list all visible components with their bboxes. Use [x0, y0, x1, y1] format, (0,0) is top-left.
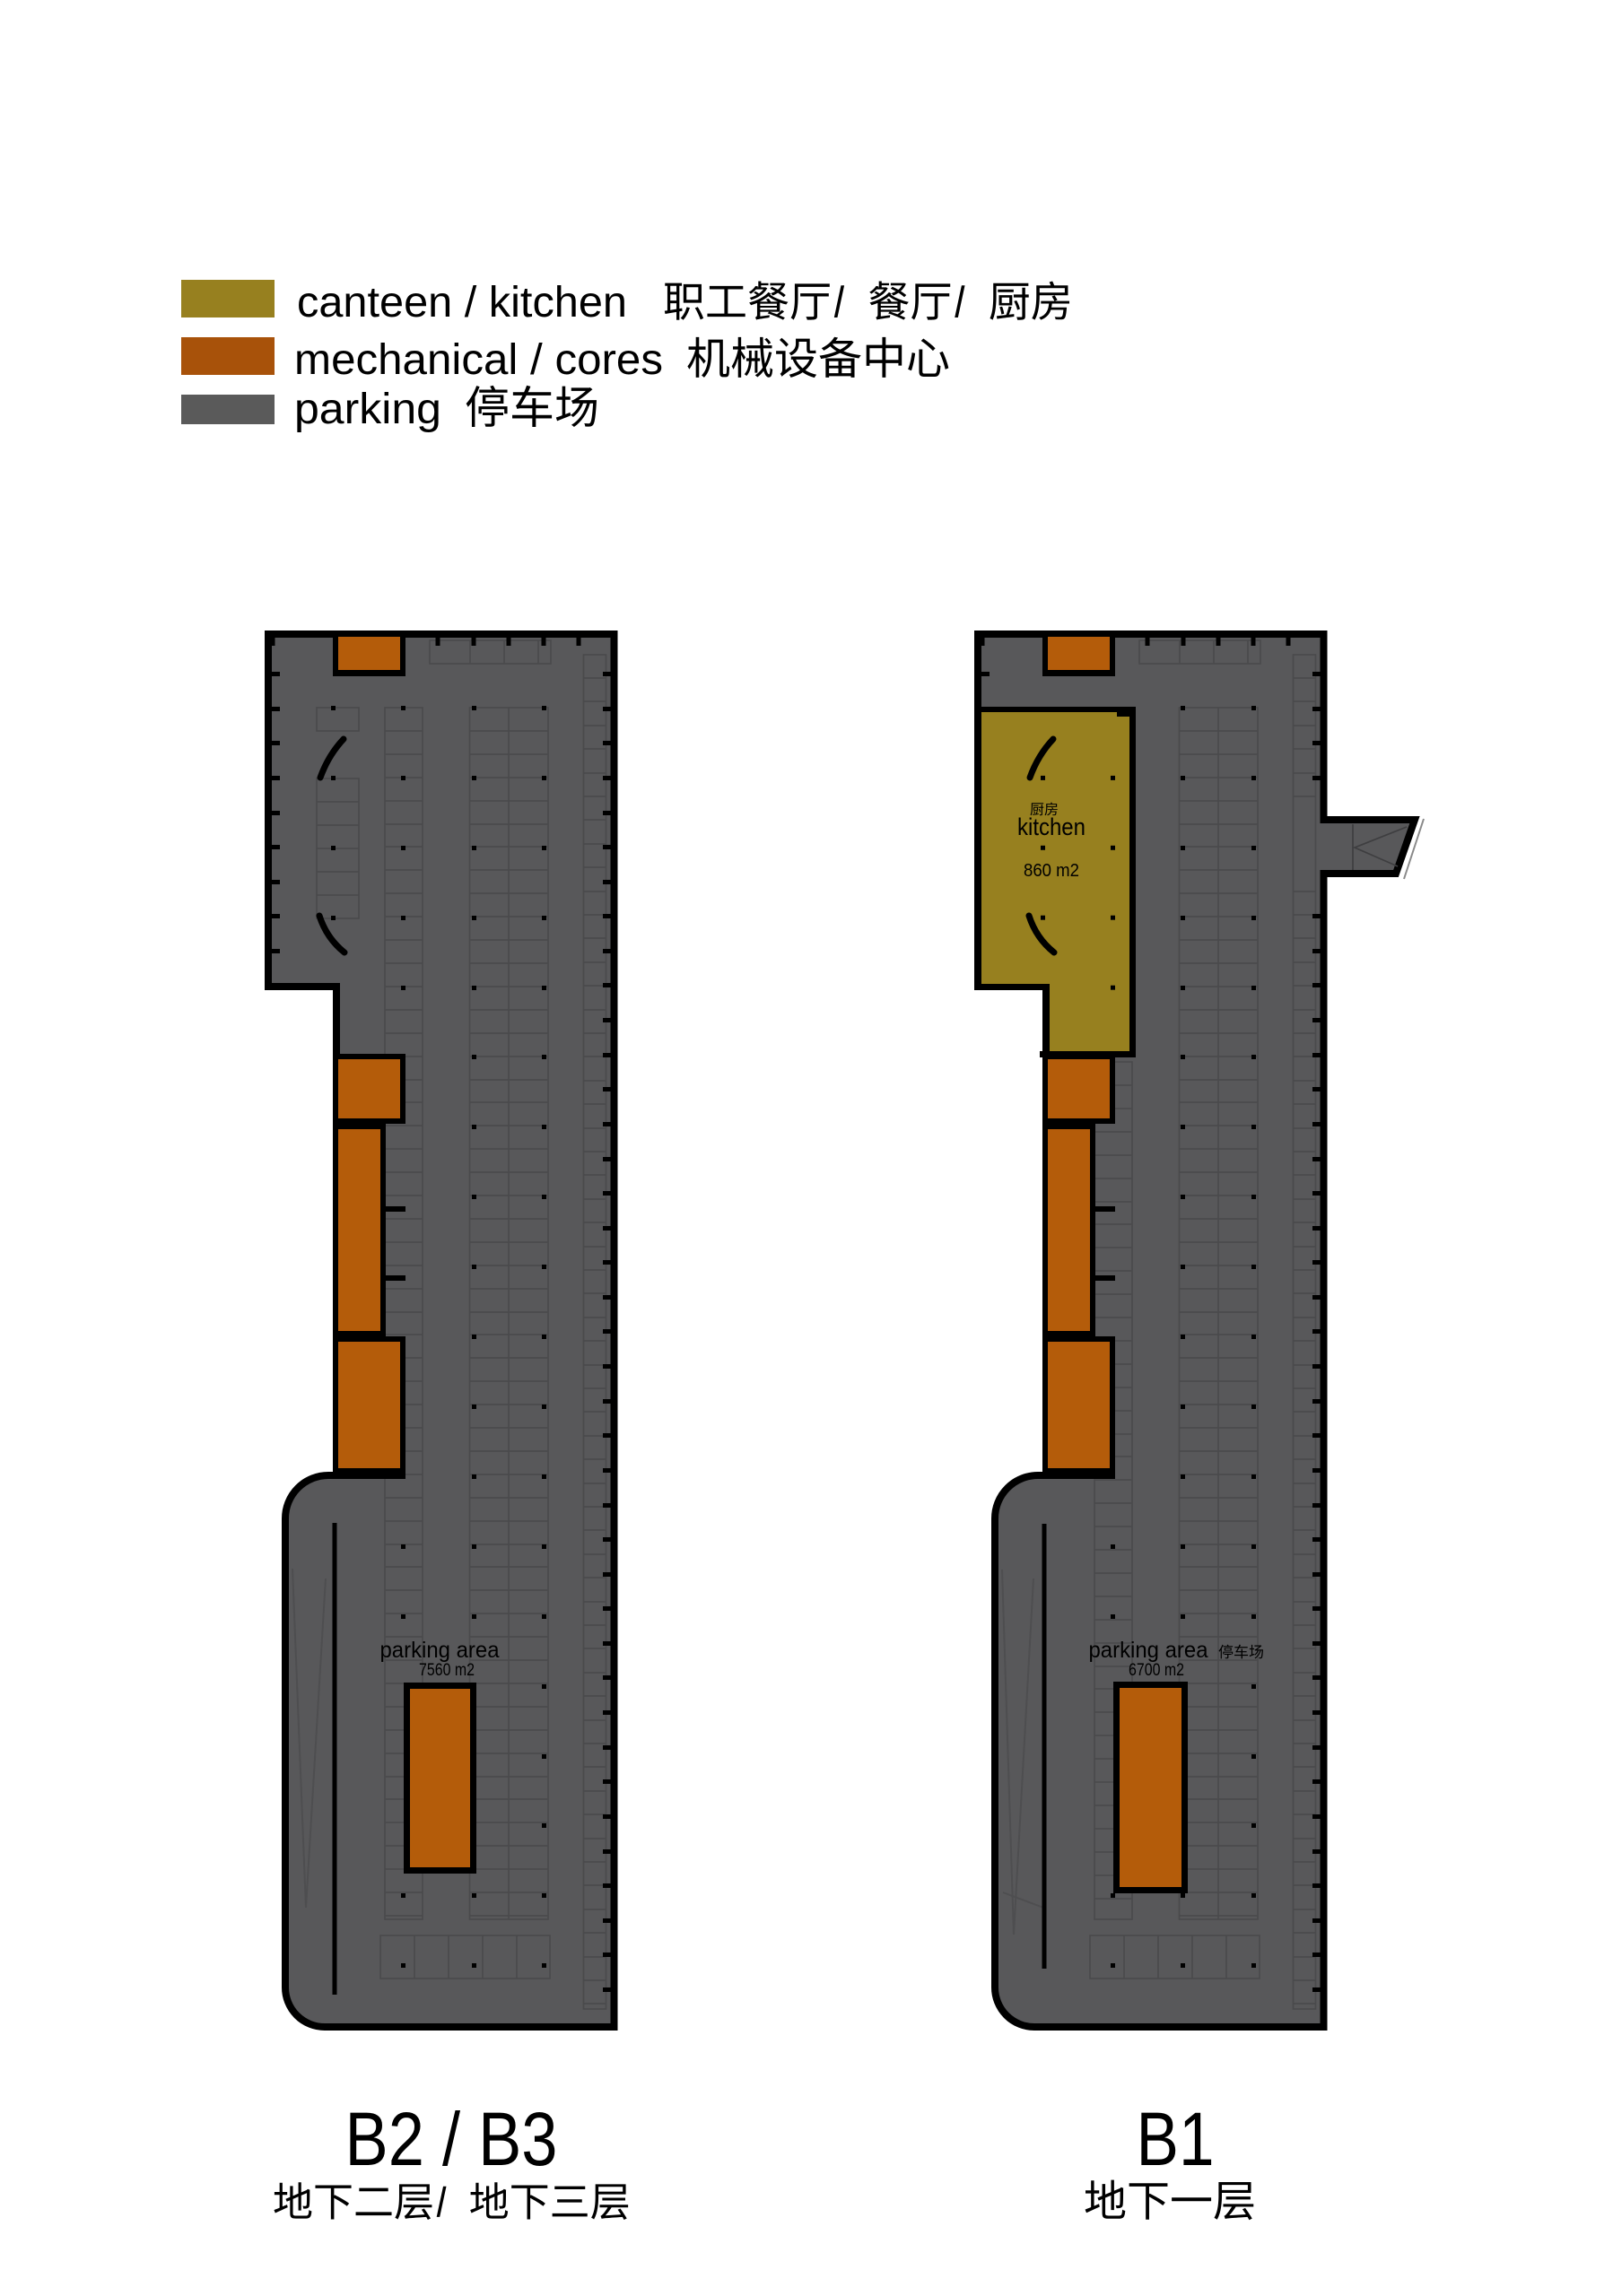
svg-text:parking area: parking area [380, 1638, 500, 1663]
svg-text:7560 m2: 7560 m2 [419, 1661, 475, 1680]
svg-text:860 m2: 860 m2 [1024, 861, 1079, 881]
svg-text:parking: parking [294, 386, 441, 433]
svg-text:B1: B1 [1137, 2097, 1215, 2181]
svg-text:B2 / B3: B2 / B3 [345, 2097, 558, 2181]
svg-text:parking area: parking area [1089, 1638, 1208, 1663]
svg-text:6700 m2: 6700 m2 [1129, 1661, 1184, 1680]
svg-text:mechanical / cores: mechanical / cores [294, 336, 663, 384]
svg-text:canteen / kitchen: canteen / kitchen [297, 279, 627, 326]
svg-text:kitchen: kitchen [1017, 813, 1086, 840]
